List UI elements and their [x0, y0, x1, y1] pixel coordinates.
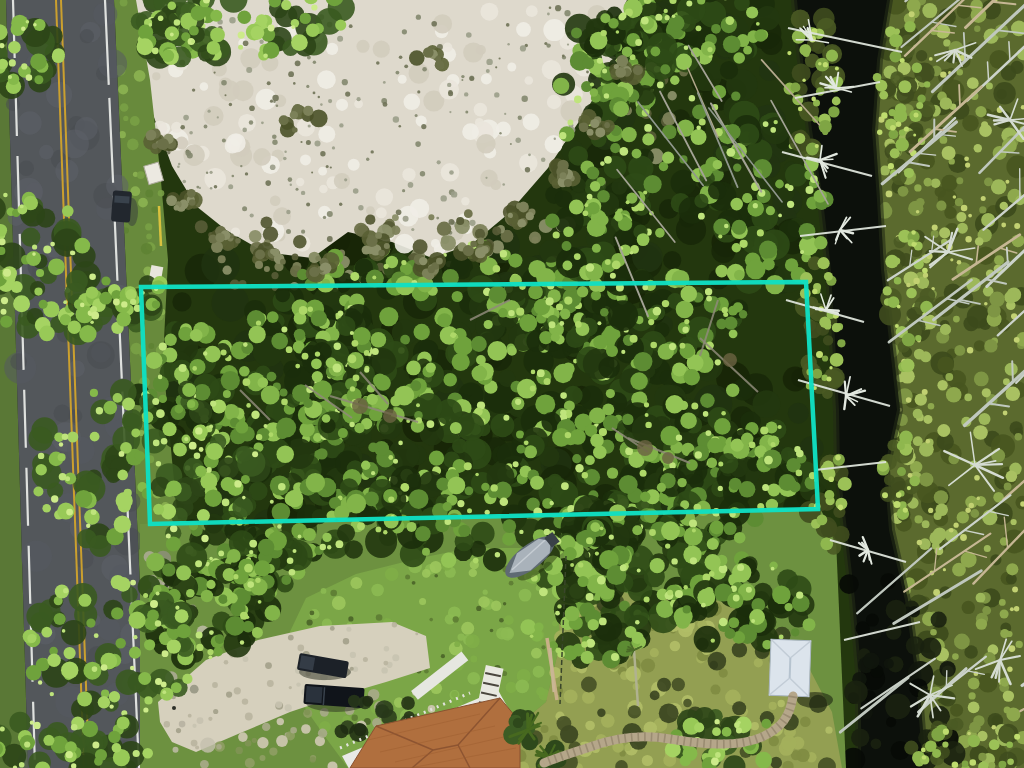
truck-2-cab [306, 686, 323, 703]
gazebo-ridge [790, 658, 791, 678]
aerial-photo [0, 0, 1024, 768]
car-body [111, 190, 132, 222]
gazebo [769, 639, 811, 696]
truck-1-cab [299, 655, 315, 670]
aerial-photo-screenshot [0, 0, 1024, 768]
parked-car [111, 190, 132, 222]
car-windshield [114, 196, 129, 204]
